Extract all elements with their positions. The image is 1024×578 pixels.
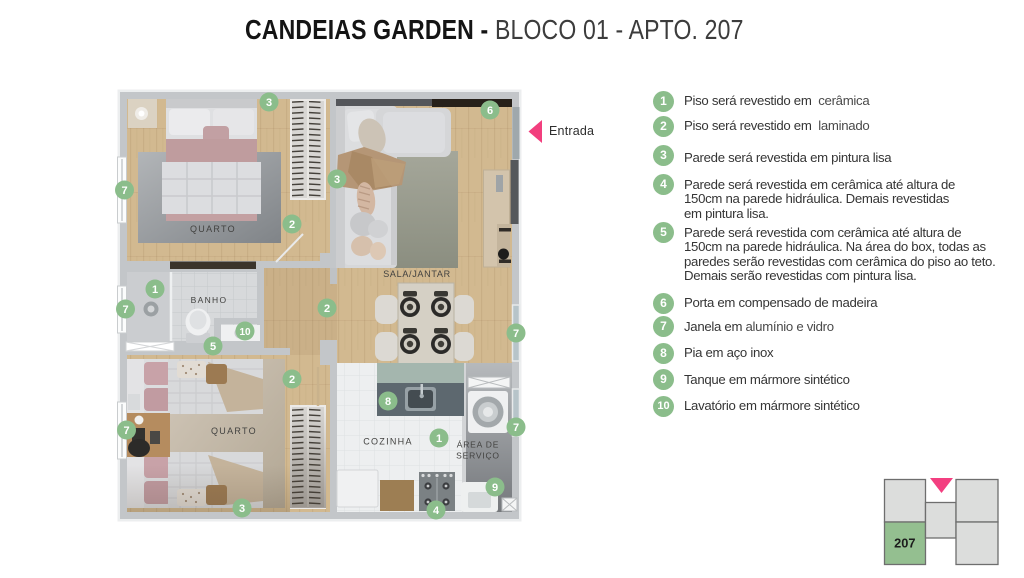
svg-text:BANHO: BANHO	[191, 295, 228, 305]
svg-text:3: 3	[334, 174, 340, 186]
svg-text:7: 7	[513, 328, 519, 340]
svg-text:1: 1	[436, 433, 442, 445]
svg-text:6: 6	[487, 105, 493, 117]
svg-text:3: 3	[239, 503, 245, 515]
svg-text:1: 1	[152, 284, 158, 296]
svg-text:8: 8	[385, 396, 391, 408]
svg-text:7: 7	[513, 422, 519, 434]
svg-text:COZINHA: COZINHA	[363, 437, 413, 447]
svg-text:7: 7	[122, 304, 128, 316]
svg-text:ÁREA DE: ÁREA DE	[457, 440, 499, 450]
svg-text:5: 5	[210, 341, 216, 353]
svg-text:7: 7	[123, 425, 129, 437]
svg-text:2: 2	[289, 374, 295, 386]
svg-text:SALA/JANTAR: SALA/JANTAR	[383, 269, 451, 279]
svg-text:207: 207	[894, 536, 915, 551]
svg-text:10: 10	[239, 327, 251, 338]
svg-text:3: 3	[266, 97, 272, 109]
svg-text:QUARTO: QUARTO	[190, 224, 236, 234]
svg-text:QUARTO: QUARTO	[211, 426, 257, 436]
svg-text:2: 2	[289, 219, 295, 231]
svg-text:2: 2	[324, 303, 330, 315]
svg-text:SERVIÇO: SERVIÇO	[456, 451, 500, 461]
svg-text:4: 4	[433, 505, 440, 517]
svg-text:7: 7	[121, 185, 127, 197]
svg-text:9: 9	[492, 482, 498, 494]
